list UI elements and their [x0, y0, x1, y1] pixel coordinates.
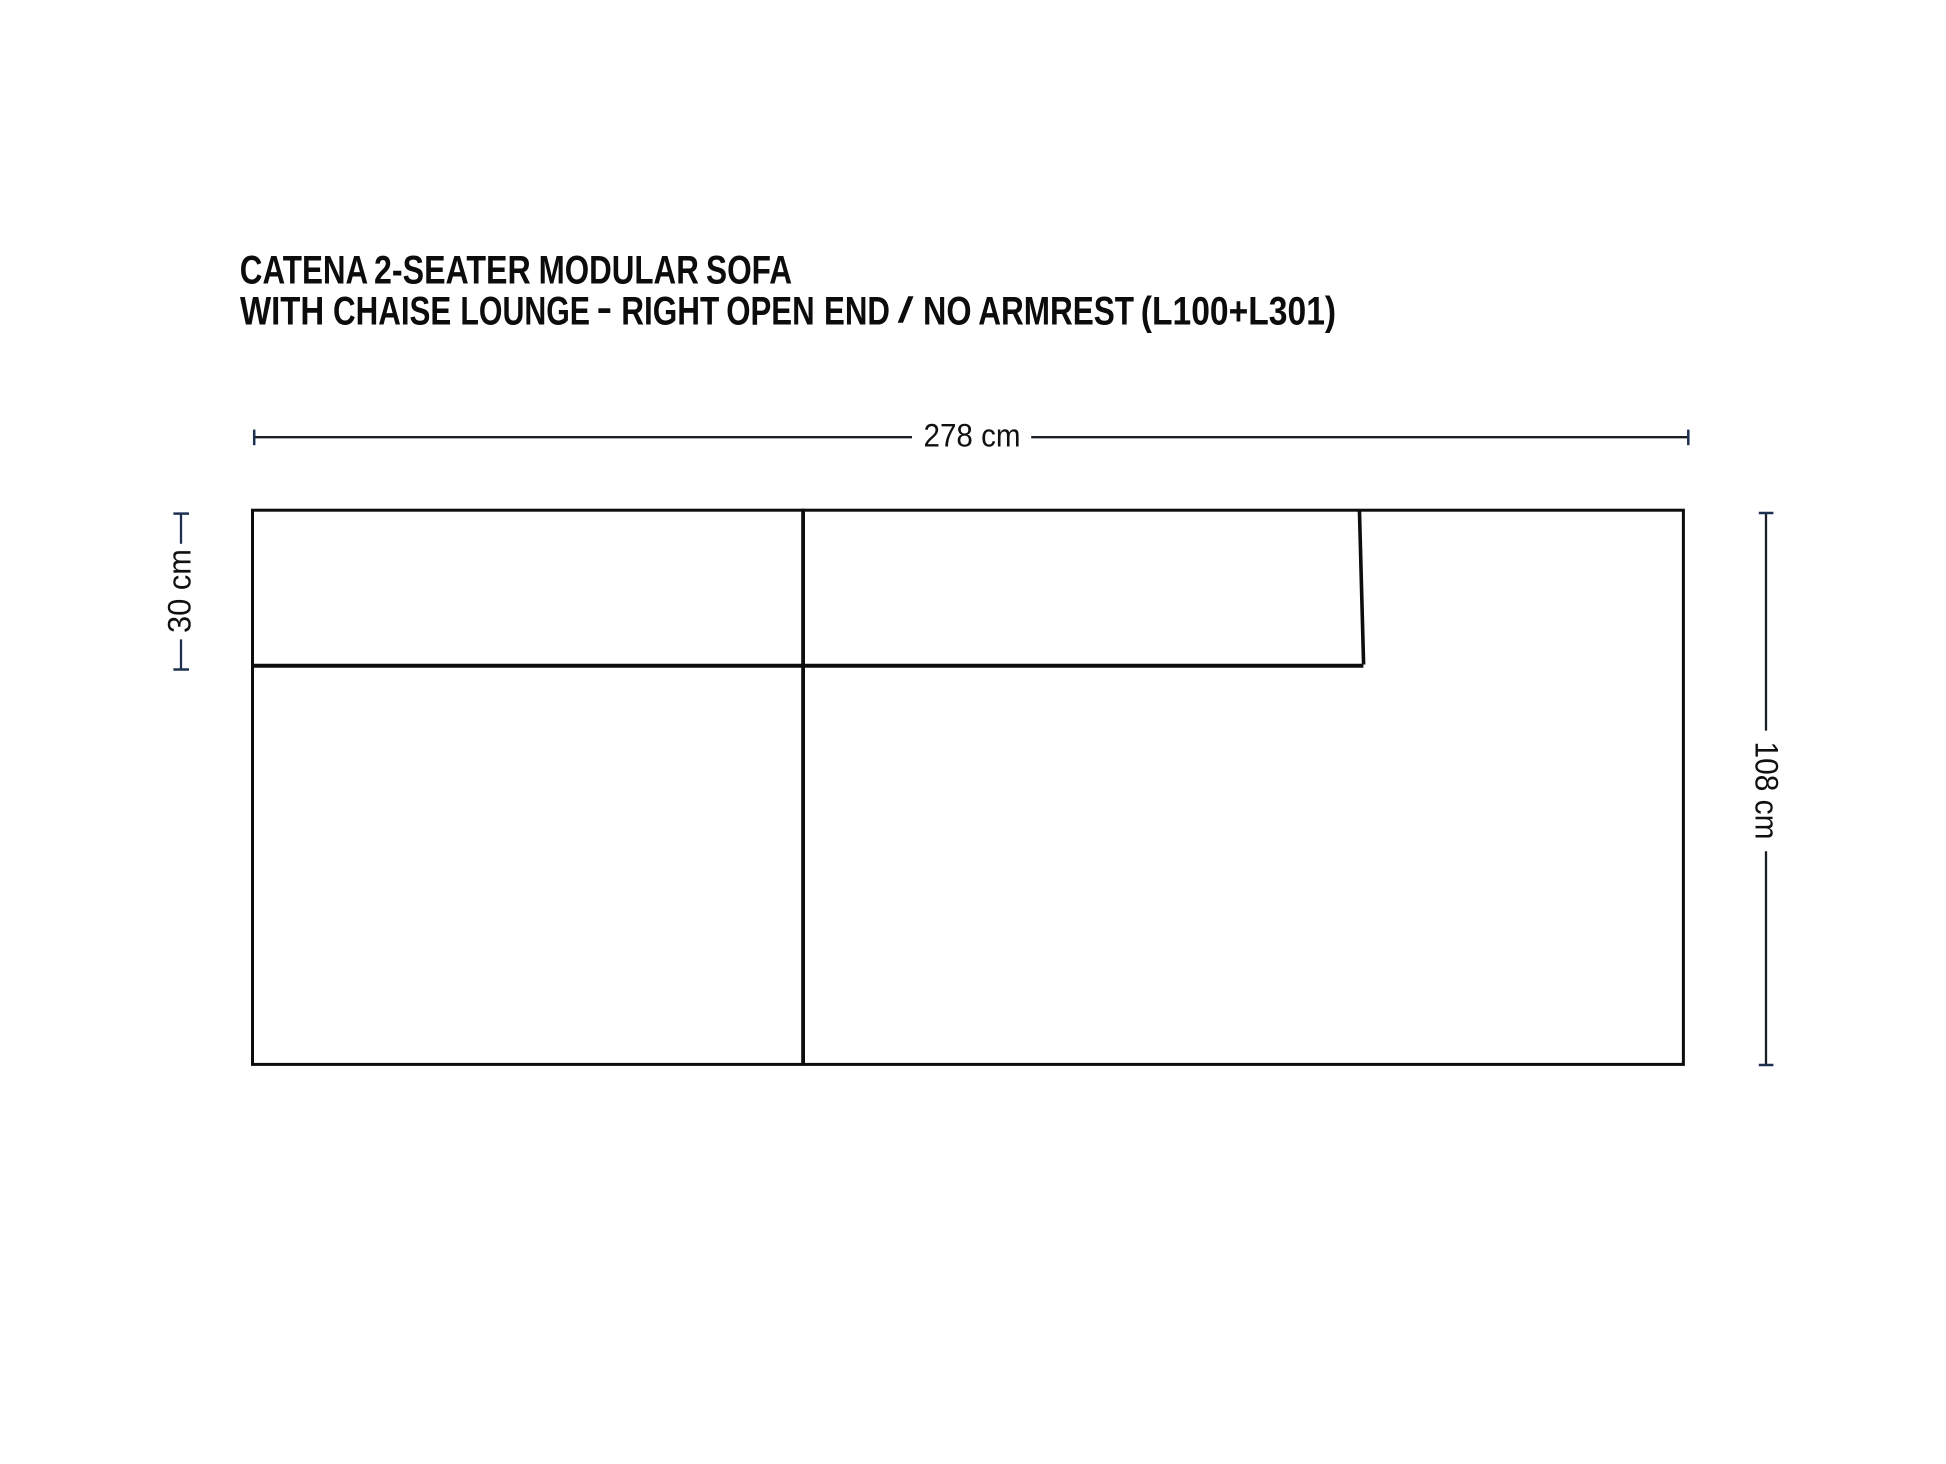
svg-text:30 cm: 30 cm — [161, 549, 197, 633]
svg-text:CHAISE: CHAISE — [333, 288, 451, 334]
svg-text:ARMREST: ARMREST — [978, 288, 1134, 334]
svg-text:WITH: WITH — [240, 289, 324, 334]
svg-text:(L100+L301): (L100+L301) — [1141, 289, 1336, 333]
svg-text:OPEN: OPEN — [726, 289, 814, 334]
svg-text:MODULAR: MODULAR — [539, 247, 699, 293]
svg-text:CATENA: CATENA — [240, 247, 368, 293]
svg-text:NO: NO — [923, 288, 972, 333]
svg-text:RIGHT: RIGHT — [621, 288, 719, 334]
svg-text:LOUNGE: LOUNGE — [460, 289, 590, 334]
svg-text:2-SEATER: 2-SEATER — [374, 247, 531, 292]
svg-text:END: END — [824, 289, 890, 334]
svg-text:278 cm: 278 cm — [924, 417, 1021, 453]
svg-text:108 cm: 108 cm — [1748, 742, 1784, 840]
svg-text:SOFA: SOFA — [706, 247, 792, 292]
